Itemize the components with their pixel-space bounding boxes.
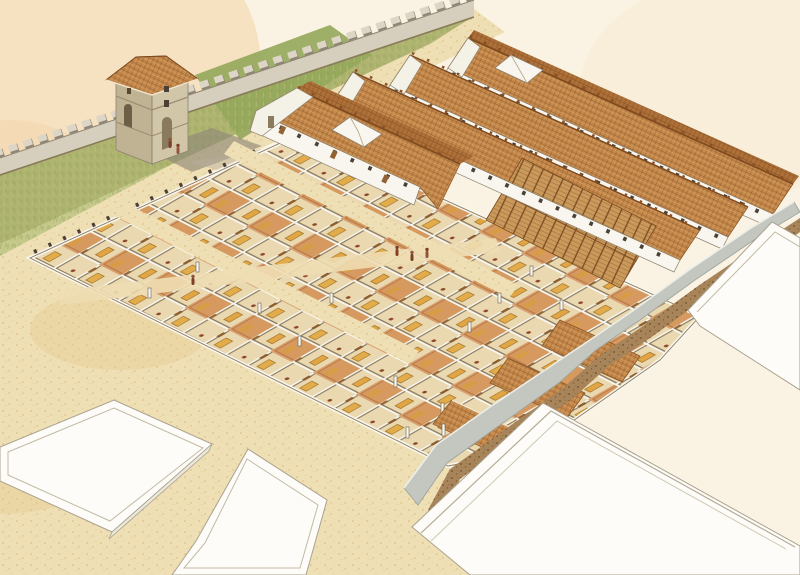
illustration-roman-fort [0,0,800,575]
figure [176,144,179,154]
hall-gable-door [268,116,274,128]
tower-window-side [127,88,131,94]
scene-canvas [0,0,800,575]
tower-window [164,100,169,107]
figure [191,275,194,285]
figure [168,138,171,148]
figure [410,251,413,261]
figure [395,246,398,256]
tower-arched-door-side [124,104,132,128]
figure [425,248,428,258]
tower-window [164,86,169,92]
